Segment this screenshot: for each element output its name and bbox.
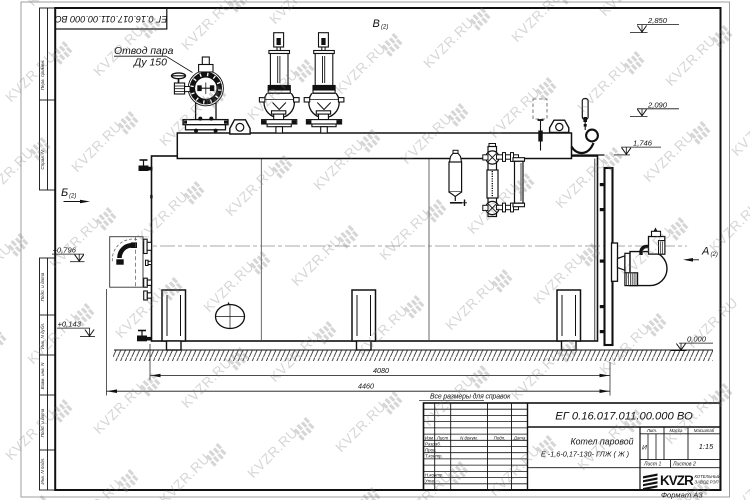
svg-text:N докум.: N докум. bbox=[460, 435, 478, 440]
svg-text:Дата: Дата bbox=[513, 435, 526, 440]
svg-text:1:15: 1:15 bbox=[699, 442, 714, 451]
svg-text:Лит.: Лит. bbox=[646, 428, 657, 433]
svg-text:Взам. инв. N: Взам. инв. N bbox=[40, 362, 45, 389]
svg-text:Инв. N подл.: Инв. N подл. bbox=[40, 458, 45, 485]
svg-text:И: И bbox=[642, 445, 647, 452]
svg-text:Б: Б bbox=[61, 187, 68, 199]
svg-text:Т.контр.: Т.контр. bbox=[425, 454, 443, 459]
svg-text:Масштаб: Масштаб bbox=[694, 428, 715, 433]
svg-text:Изм: Изм bbox=[425, 435, 433, 440]
svg-text:Подп. и дата: Подп. и дата bbox=[40, 272, 45, 301]
svg-text:2,850: 2,850 bbox=[647, 16, 668, 25]
svg-text:Пров.: Пров. bbox=[425, 448, 437, 453]
svg-text:(2): (2) bbox=[69, 194, 76, 200]
svg-text:4460: 4460 bbox=[358, 382, 374, 391]
svg-text:2,090: 2,090 bbox=[647, 101, 668, 110]
svg-text:КОТЕЛЬНЫЙ: КОТЕЛЬНЫЙ bbox=[695, 474, 721, 479]
svg-text:Подп.: Подп. bbox=[494, 435, 506, 440]
svg-text:Ду 150: Ду 150 bbox=[133, 58, 167, 69]
svg-text:В: В bbox=[373, 18, 380, 30]
svg-text:KVZR: KVZR bbox=[660, 473, 694, 488]
svg-text:4080: 4080 bbox=[373, 366, 389, 375]
svg-text:Разраб.: Разраб. bbox=[425, 441, 441, 446]
svg-text:(2): (2) bbox=[381, 25, 388, 31]
svg-text:ЗАВОД РЭП: ЗАВОД РЭП bbox=[695, 480, 720, 485]
svg-text:1,746: 1,746 bbox=[633, 139, 653, 148]
svg-text:А: А bbox=[701, 246, 709, 258]
svg-text:Листов 2: Листов 2 bbox=[672, 461, 696, 467]
svg-text:Лист 1: Лист 1 bbox=[643, 461, 662, 467]
svg-text:Лист: Лист bbox=[436, 435, 449, 440]
